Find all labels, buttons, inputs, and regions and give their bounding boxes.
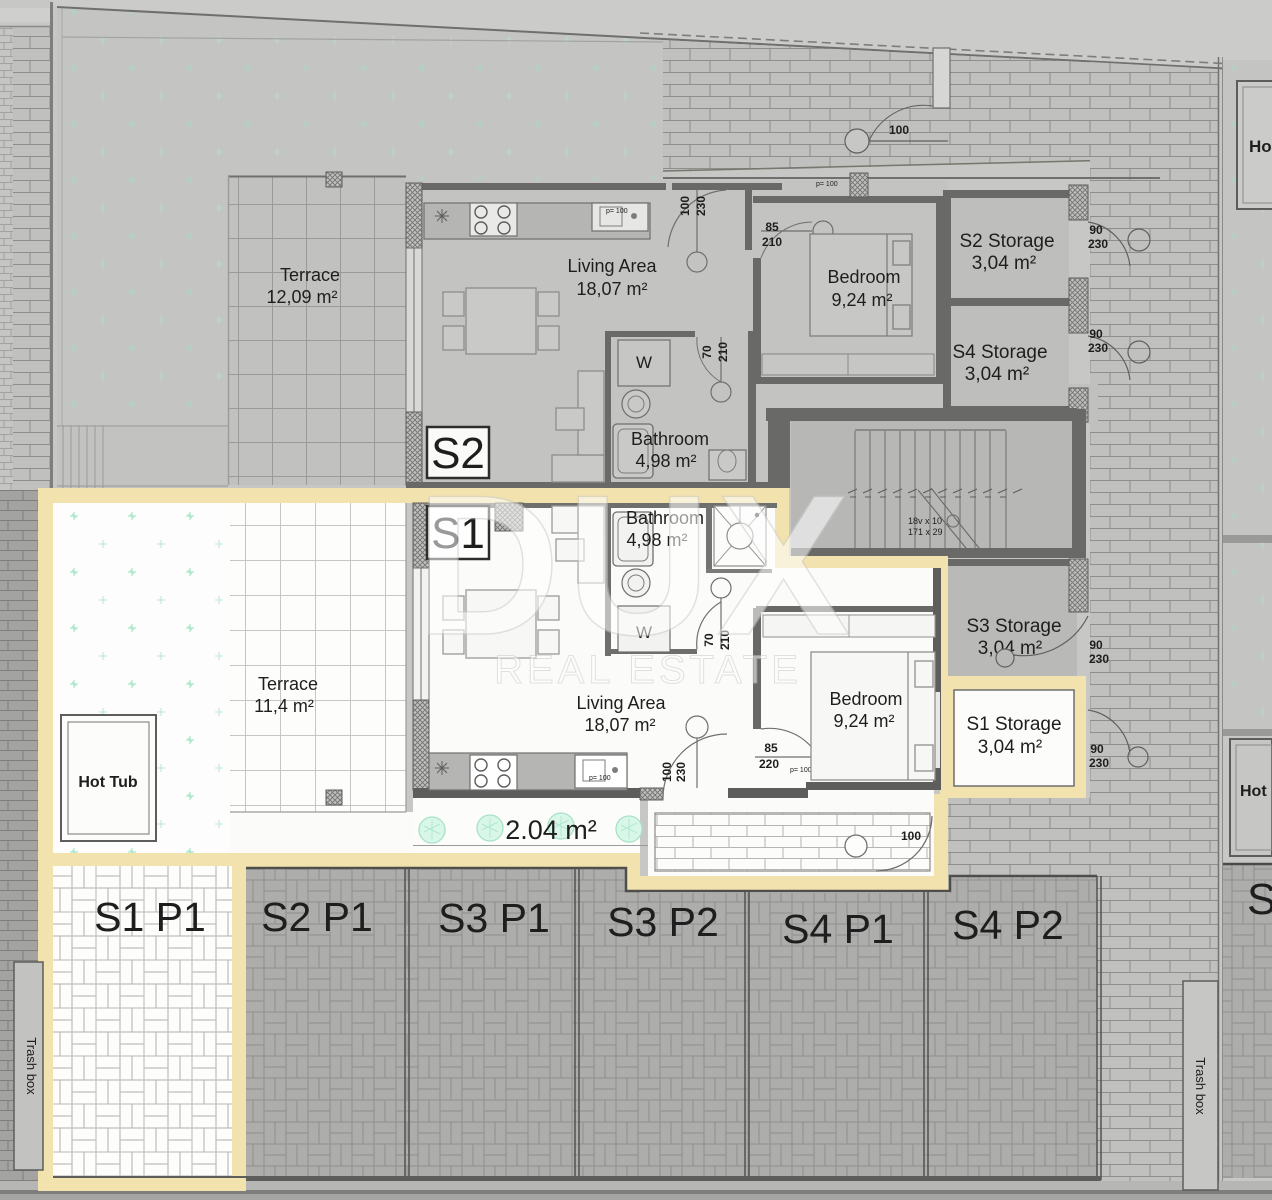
svg-text:18v x 10: 18v x 10 — [908, 516, 942, 526]
svg-text:Ho: Ho — [1249, 137, 1272, 156]
svg-text:85: 85 — [764, 741, 778, 755]
svg-text:90: 90 — [1090, 742, 1104, 756]
svg-text:DUX: DUX — [416, 454, 856, 677]
svg-text:Trash box: Trash box — [1193, 1057, 1208, 1115]
svg-text:S4 P1: S4 P1 — [782, 906, 894, 952]
svg-text:Terrace: Terrace — [258, 674, 318, 694]
svg-text:9,24 m²: 9,24 m² — [831, 290, 892, 310]
svg-text:3,04 m²: 3,04 m² — [965, 364, 1029, 385]
svg-text:3,04 m²: 3,04 m² — [978, 737, 1042, 758]
svg-text:p= 100: p= 100 — [606, 208, 628, 215]
svg-text:3,04 m²: 3,04 m² — [972, 253, 1036, 274]
svg-text:90: 90 — [1089, 223, 1103, 237]
svg-text:Bedroom: Bedroom — [829, 689, 902, 709]
svg-text:210: 210 — [762, 235, 782, 249]
svg-text:171 x 29: 171 x 29 — [908, 527, 943, 537]
svg-text:p= 100: p= 100 — [589, 775, 611, 782]
svg-text:Trash box: Trash box — [24, 1037, 39, 1095]
svg-text:S3 P2: S3 P2 — [607, 899, 719, 945]
svg-text:230: 230 — [694, 196, 708, 216]
svg-text:Bedroom: Bedroom — [827, 267, 900, 287]
svg-text:230: 230 — [1088, 237, 1108, 251]
svg-text:90: 90 — [1089, 327, 1103, 341]
svg-text:210: 210 — [716, 342, 730, 362]
svg-text:Living Area: Living Area — [567, 256, 657, 276]
svg-text:70: 70 — [700, 345, 714, 359]
svg-text:S1 Storage: S1 Storage — [966, 714, 1061, 735]
svg-text:S1 P1: S1 P1 — [94, 894, 206, 940]
svg-text:Living Area: Living Area — [576, 693, 666, 713]
svg-text:Hot: Hot — [1240, 783, 1267, 800]
svg-text:100: 100 — [678, 196, 692, 216]
svg-text:18,07 m²: 18,07 m² — [576, 279, 647, 299]
svg-text:90: 90 — [1089, 638, 1103, 652]
svg-text:2.04 m²: 2.04 m² — [505, 815, 597, 845]
svg-text:12,09 m²: 12,09 m² — [266, 287, 337, 307]
svg-text:18,07 m²: 18,07 m² — [584, 715, 655, 735]
svg-text:230: 230 — [1089, 652, 1109, 666]
svg-text:100: 100 — [901, 829, 921, 843]
svg-text:S2 Storage: S2 Storage — [959, 231, 1054, 252]
svg-text:p= 100: p= 100 — [790, 767, 812, 774]
svg-text:S3 P1: S3 P1 — [438, 895, 550, 941]
svg-text:85: 85 — [765, 220, 779, 234]
svg-text:230: 230 — [1089, 756, 1109, 770]
svg-text:Hot Tub: Hot Tub — [78, 774, 137, 791]
svg-text:11,4 m²: 11,4 m² — [254, 696, 314, 716]
svg-text:230: 230 — [674, 762, 688, 782]
svg-text:S3 Storage: S3 Storage — [966, 616, 1061, 637]
svg-text:Terrace: Terrace — [280, 265, 340, 285]
svg-text:230: 230 — [1088, 341, 1108, 355]
svg-text:9,24 m²: 9,24 m² — [833, 711, 894, 731]
svg-text:S4 P2: S4 P2 — [952, 902, 1064, 948]
svg-text:p= 100: p= 100 — [816, 181, 838, 188]
svg-text:220: 220 — [759, 757, 779, 771]
svg-text:S4 Storage: S4 Storage — [952, 342, 1047, 363]
svg-text:100: 100 — [660, 762, 674, 782]
svg-text:100: 100 — [889, 123, 909, 137]
svg-text:W: W — [636, 353, 652, 372]
svg-text:REAL ESTATE: REAL ESTATE — [494, 648, 802, 692]
svg-text:Bathroom: Bathroom — [631, 429, 709, 449]
svg-text:S2 P1: S2 P1 — [261, 894, 373, 940]
svg-text:S: S — [1247, 875, 1272, 924]
